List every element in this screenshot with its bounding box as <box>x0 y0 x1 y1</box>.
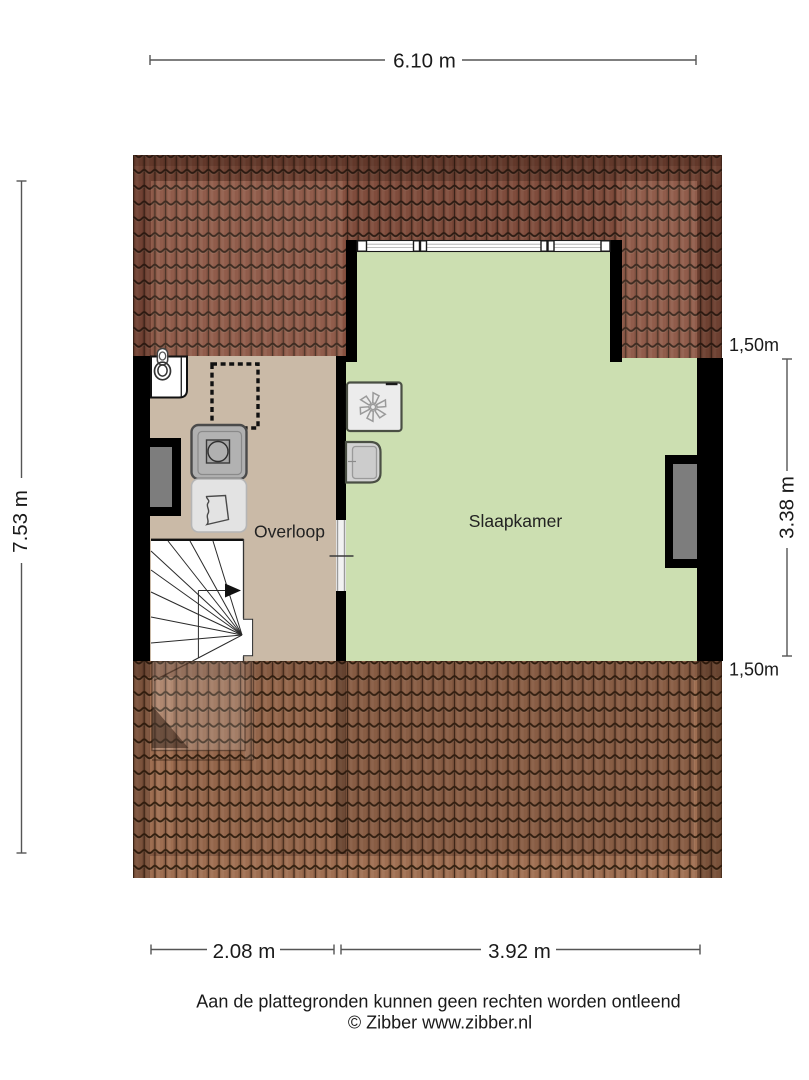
svg-text:Slaapkamer: Slaapkamer <box>469 511 563 531</box>
svg-text:1,50m: 1,50m <box>729 335 779 355</box>
svg-text:Aan de plattegronden kunnen ge: Aan de plattegronden kunnen geen rechten… <box>196 992 680 1012</box>
svg-text:Overloop: Overloop <box>254 522 325 542</box>
svg-text:6.10 m: 6.10 m <box>393 50 456 73</box>
svg-text:© Zibber www.zibber.nl: © Zibber www.zibber.nl <box>348 1012 532 1032</box>
svg-text:7.53 m: 7.53 m <box>9 490 32 553</box>
svg-text:2.08 m: 2.08 m <box>213 940 276 963</box>
svg-text:1,50m: 1,50m <box>729 660 779 680</box>
svg-text:3.92 m: 3.92 m <box>488 940 551 963</box>
svg-text:3.38 m: 3.38 m <box>775 476 798 539</box>
